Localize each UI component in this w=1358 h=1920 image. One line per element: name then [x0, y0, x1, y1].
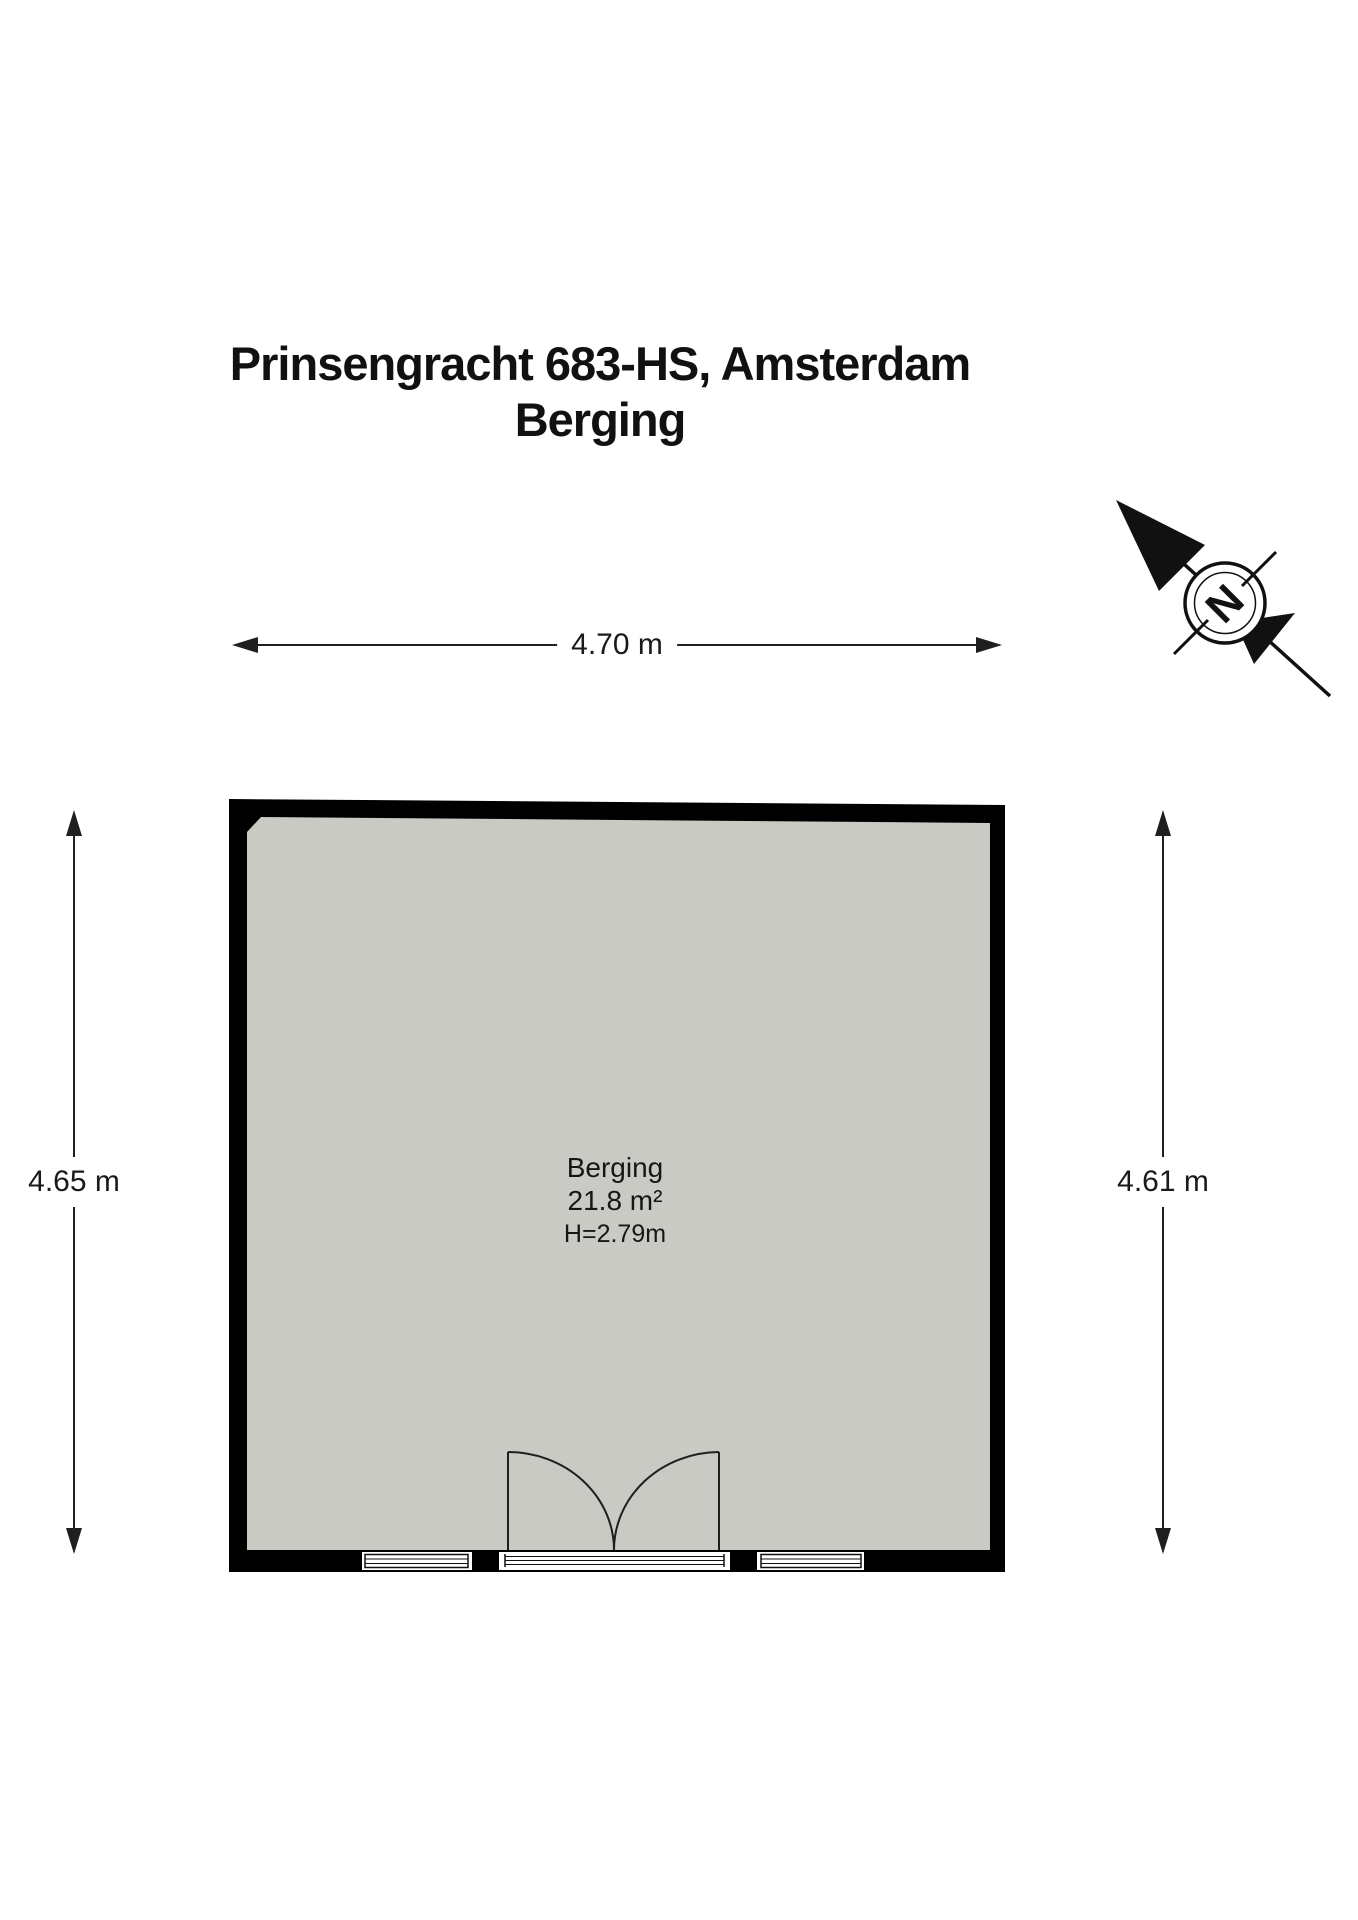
- room-ceiling-height: H=2.79m: [420, 1218, 810, 1250]
- page-title: Prinsengracht 683-HS, Amsterdam Berging: [0, 336, 1200, 448]
- dimension-top: 4.70 m: [232, 630, 1002, 660]
- arrow-left-icon: [232, 637, 258, 653]
- door-opening: [499, 1552, 730, 1570]
- property-address: Prinsengracht 683-HS, Amsterdam: [0, 336, 1200, 392]
- arrow-up-icon: [66, 810, 82, 836]
- arrow-down-icon: [1155, 1528, 1171, 1554]
- window-left-frame: [365, 1555, 468, 1568]
- room-label: Berging 21.8 m² H=2.79m: [420, 1151, 810, 1250]
- window-right-frame: [761, 1555, 861, 1568]
- dimension-left-label: 4.65 m: [26, 1157, 122, 1207]
- north-arrow-icon: N: [1108, 492, 1340, 710]
- room-area: 21.8 m²: [420, 1184, 810, 1218]
- dimension-right-label: 4.61 m: [1115, 1157, 1211, 1207]
- floorplan-page: Prinsengracht 683-HS, Amsterdam Berging …: [0, 0, 1358, 1920]
- compass-arrowhead: [1116, 500, 1205, 591]
- arrow-down-icon: [66, 1528, 82, 1554]
- window-left: [362, 1552, 472, 1570]
- window-right: [757, 1552, 864, 1570]
- dimension-right: 4.61 m: [1145, 810, 1181, 1554]
- floor-name: Berging: [0, 392, 1200, 448]
- room-name: Berging: [420, 1151, 810, 1184]
- dimension-top-label: 4.70 m: [557, 630, 677, 660]
- arrow-up-icon: [1155, 810, 1171, 836]
- arrow-right-icon: [976, 637, 1002, 653]
- dimension-left: 4.65 m: [56, 810, 92, 1554]
